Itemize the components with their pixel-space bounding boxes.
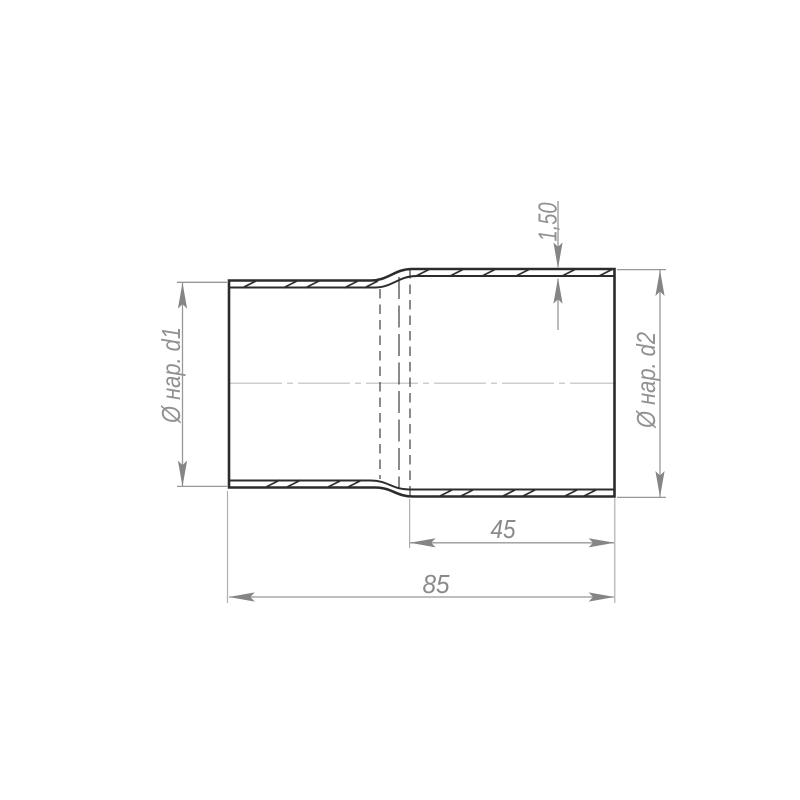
svg-text:1,50: 1,50 [533, 202, 563, 241]
svg-text:Ø нар. d2: Ø нар. d2 [631, 332, 661, 429]
svg-text:45: 45 [491, 514, 516, 544]
svg-text:Ø нар. d1: Ø нар. d1 [156, 327, 186, 424]
svg-text:85: 85 [423, 569, 451, 599]
